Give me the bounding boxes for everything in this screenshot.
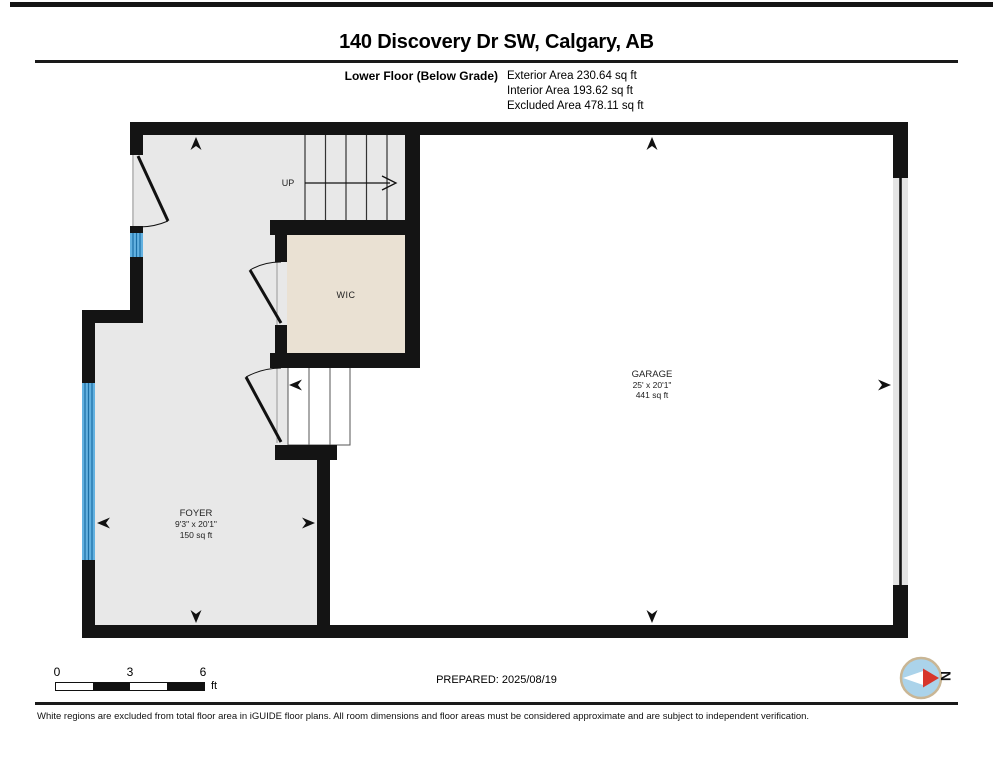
stairs-lower [288, 363, 350, 445]
garage-arrow-right [878, 380, 891, 391]
foyer-dimensions: 9'3" x 20'1" [175, 519, 217, 529]
compass-icon [896, 655, 966, 703]
garage-arrow-up [647, 137, 658, 150]
floorplan-drawing: UP WIC FOYER 9'3" x 20'1" 150 sq ft GARA… [0, 0, 993, 768]
garage-label: GARAGE [632, 369, 673, 380]
foyer-label: FOYER [180, 508, 213, 519]
garage-arrow-down [647, 610, 658, 623]
garage-door [893, 178, 908, 585]
wic-label: WIC [337, 290, 356, 300]
disclaimer-text: White regions are excluded from total fl… [37, 711, 967, 722]
garage-dimensions: 25' x 20'1" [633, 380, 672, 390]
footer-divider [35, 702, 958, 705]
compass-north-label: N [938, 671, 954, 681]
garage-area: 441 sq ft [636, 390, 669, 400]
prepared-date: PREPARED: 2025/08/19 [0, 674, 993, 686]
stairs-up-label: UP [282, 178, 295, 188]
floorplan-page: 140 Discovery Dr SW, Calgary, AB Lower F… [0, 0, 993, 768]
foyer-area: 150 sq ft [180, 530, 213, 540]
